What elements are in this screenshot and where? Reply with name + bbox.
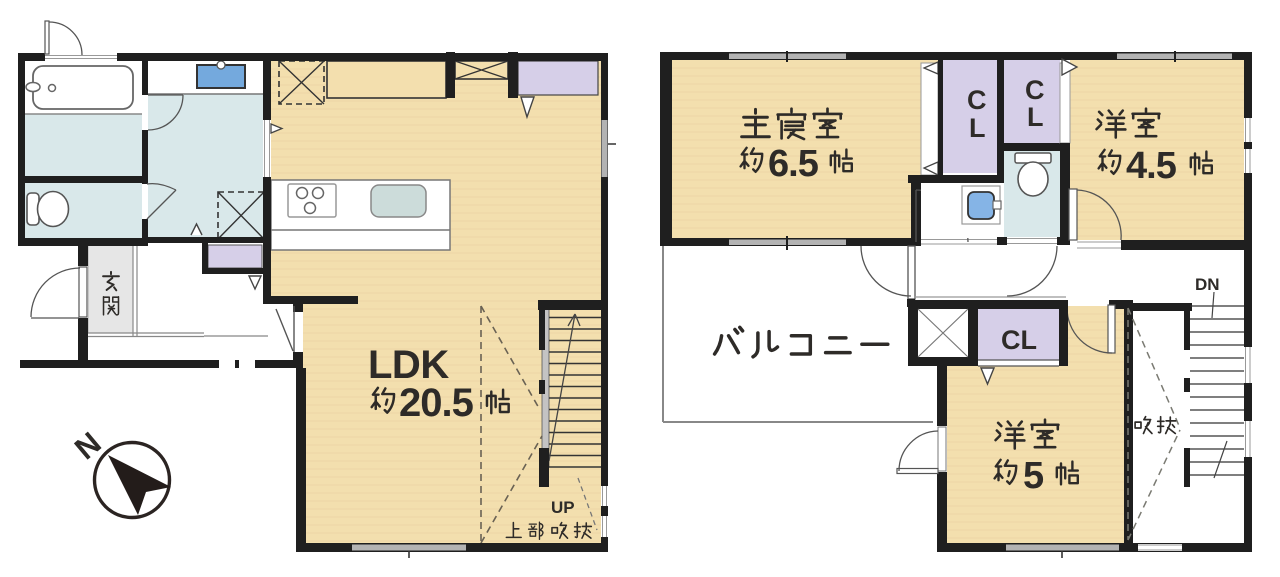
svg-text:L: L: [969, 113, 986, 143]
svg-text:20.5: 20.5: [399, 381, 474, 425]
svg-text:CL: CL: [1001, 325, 1037, 355]
svg-text:UP: UP: [551, 498, 575, 517]
svg-text:6.5: 6.5: [768, 143, 819, 185]
svg-text:4.5: 4.5: [1126, 145, 1177, 187]
svg-text:C: C: [967, 85, 987, 115]
svg-text:5: 5: [1023, 455, 1044, 497]
svg-text:C: C: [1025, 75, 1045, 105]
svg-text:DN: DN: [1195, 275, 1220, 294]
svg-text:L: L: [1027, 102, 1044, 132]
